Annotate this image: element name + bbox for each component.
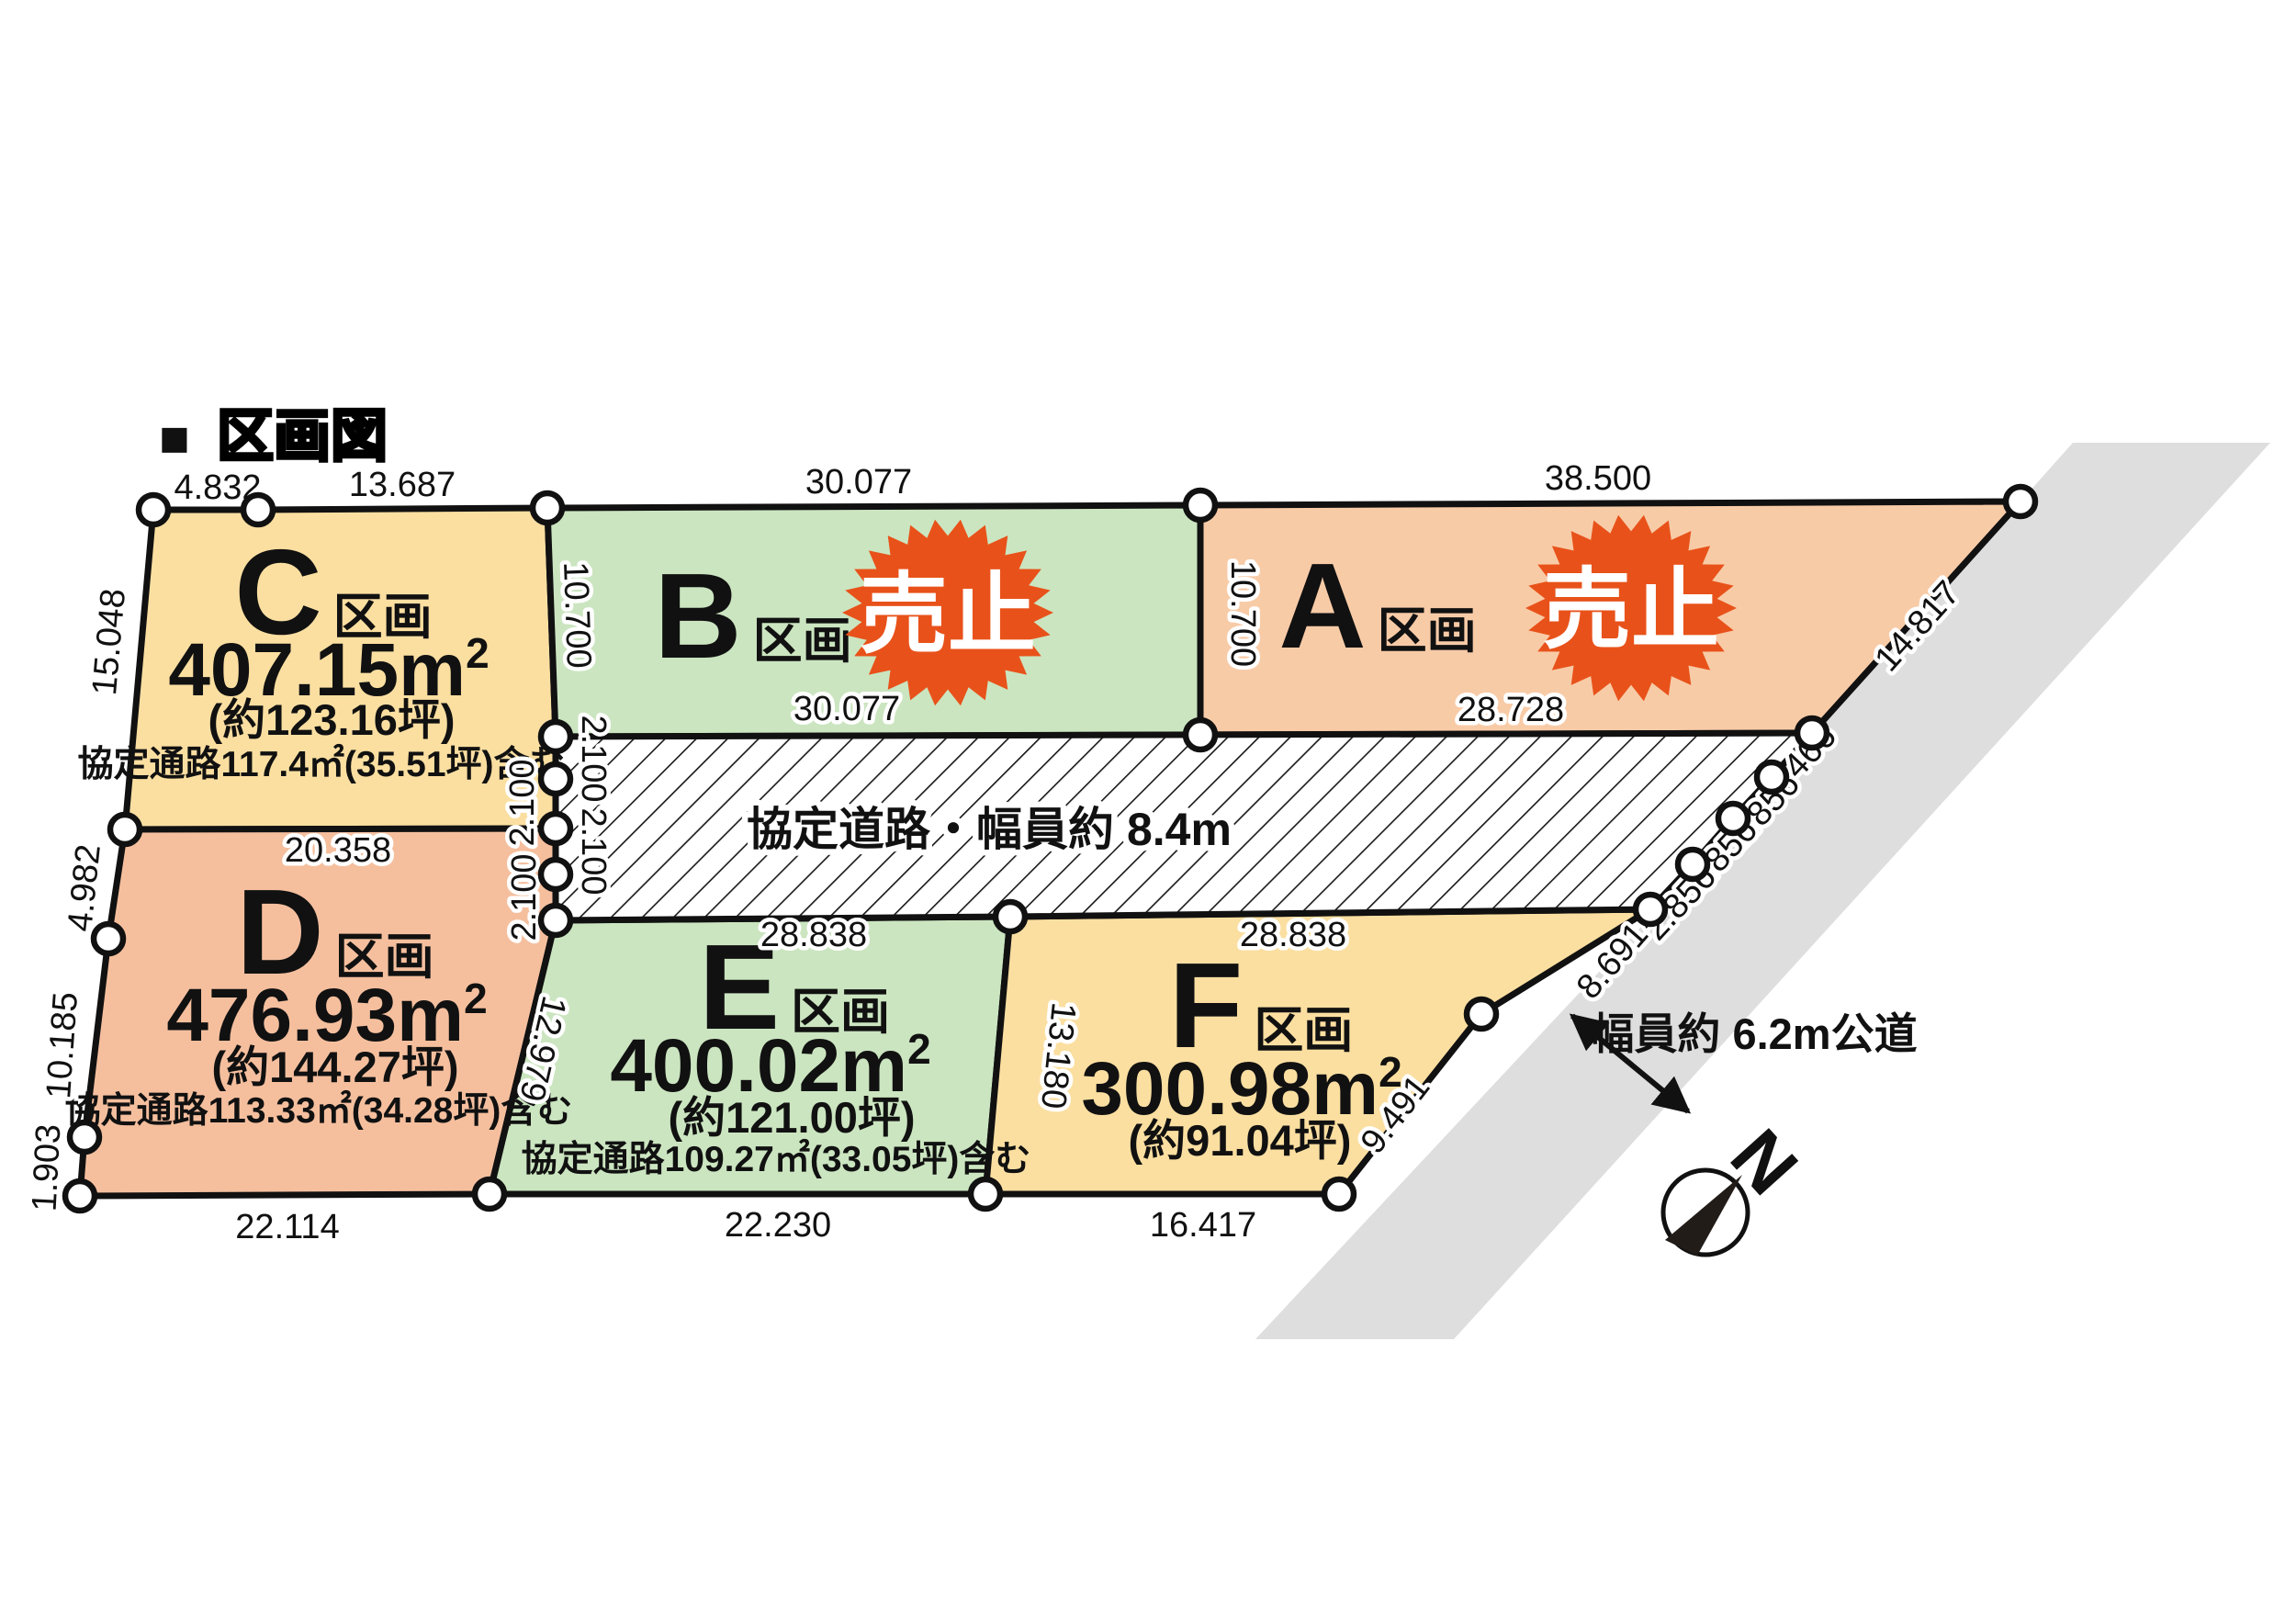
plot-c-tsubo: (約123.16坪) bbox=[208, 695, 455, 744]
dim-label: 4.982 bbox=[61, 842, 108, 933]
public-road-label: 幅員約 6.2m公道 bbox=[1591, 1009, 1917, 1058]
plot-d-tsubo: (約144.27坪) bbox=[211, 1043, 458, 1091]
agreement-road-label: 協定道路・幅員約 8.4m bbox=[747, 804, 1232, 855]
dim-label: 30.077 bbox=[805, 463, 912, 502]
dim-label: 22.230 bbox=[725, 1206, 831, 1245]
sold-badge-b-text: 売止 bbox=[860, 566, 1036, 664]
compass: N bbox=[1663, 1114, 1813, 1256]
dim-label: 22.114 bbox=[235, 1208, 339, 1246]
sold-badge-a-text: 売止 bbox=[1543, 561, 1719, 659]
dim-label: 2.100 bbox=[574, 807, 613, 895]
dim-label: 10.185 bbox=[39, 991, 85, 1100]
dim-label: 28.838 bbox=[1240, 916, 1346, 954]
dim-label: 2.100 bbox=[505, 853, 544, 941]
dim-label: 28.838 bbox=[760, 916, 867, 954]
dim-label: 20.358 bbox=[285, 831, 391, 870]
dim-label: 13.687 bbox=[349, 466, 456, 504]
dim-label: 16.417 bbox=[1150, 1206, 1256, 1245]
lot-plan-page: ■ 区画図 協定道路・幅員約 8.4m C区画 407.15m2 (約123.1… bbox=[0, 0, 2296, 1623]
dim-label: 28.728 bbox=[1458, 691, 1564, 729]
dim-label: 2.100 bbox=[503, 759, 542, 846]
plot-d-note: 協定通路113.33㎡(34.28坪)含む bbox=[65, 1090, 573, 1131]
lot-plan-svg: ■ 区画図 協定道路・幅員約 8.4m C区画 407.15m2 (約123.1… bbox=[0, 0, 2296, 1623]
dim-label: 1.903 bbox=[26, 1123, 69, 1212]
dim-label: 15.048 bbox=[85, 587, 133, 696]
plot-f-tsubo: (約91.04坪) bbox=[1129, 1116, 1352, 1165]
dim-label: 2.100 bbox=[574, 715, 613, 802]
page-title: 区画図 bbox=[217, 405, 388, 468]
dim-label: 10.700 bbox=[1223, 560, 1262, 667]
plot-e-note: 協定通路109.27㎡(33.05坪)含む bbox=[522, 1139, 1031, 1179]
plot-e-tsubo: (約121.00坪) bbox=[668, 1093, 915, 1142]
dim-label: 30.077 bbox=[793, 690, 900, 728]
title-bullet: ■ bbox=[159, 409, 190, 467]
dim-label: 10.700 bbox=[556, 561, 598, 670]
dim-label: 38.500 bbox=[1545, 459, 1651, 498]
plot-c-note: 協定通路117.4㎡(35.51坪)含む bbox=[77, 744, 565, 784]
